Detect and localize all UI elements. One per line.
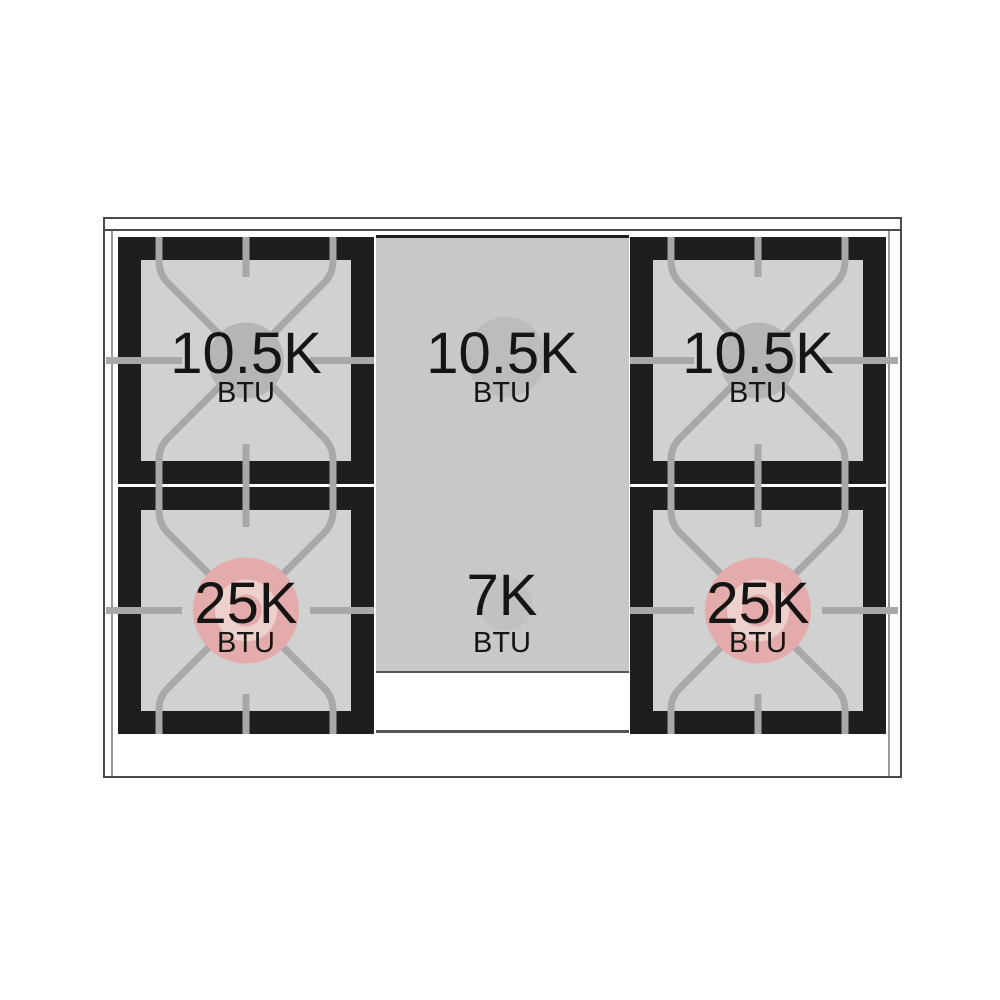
burner-bottom-right: 25K BTU bbox=[630, 487, 886, 734]
burner-btu-unit: BTU bbox=[630, 629, 886, 657]
center-griddle-panel: 10.5K BTU 7K BTU bbox=[376, 235, 629, 673]
burner-btu-value: 25K bbox=[630, 577, 886, 631]
burner-btu-value: 10.5K bbox=[376, 327, 629, 381]
range-outline: 10.5K BTU 10.5K BTU 25K BTU 25K BTU 10.5… bbox=[103, 217, 902, 778]
cooktop-diagram: 10.5K BTU 10.5K BTU 25K BTU 25K BTU 10.5… bbox=[0, 0, 1000, 1000]
burner-btu-unit: BTU bbox=[118, 379, 374, 407]
burner-top-left: 10.5K BTU bbox=[118, 237, 374, 484]
burner-btu-unit: BTU bbox=[630, 379, 886, 407]
burner-btu-value: 10.5K bbox=[118, 327, 374, 381]
back-edge-trim bbox=[105, 219, 900, 231]
burner-btu-value: 7K bbox=[376, 569, 629, 623]
left-edge-trim-line bbox=[111, 231, 113, 776]
center-drawer-front bbox=[376, 673, 629, 733]
burner-btu-unit: BTU bbox=[376, 379, 629, 407]
burner-btu-value: 10.5K bbox=[630, 327, 886, 381]
right-edge-trim-line bbox=[888, 231, 890, 776]
burner-btu-value: 25K bbox=[118, 577, 374, 631]
burner-bottom-left: 25K BTU bbox=[118, 487, 374, 734]
burner-top-right: 10.5K BTU bbox=[630, 237, 886, 484]
burner-btu-unit: BTU bbox=[118, 629, 374, 657]
burner-btu-unit: BTU bbox=[376, 629, 629, 657]
